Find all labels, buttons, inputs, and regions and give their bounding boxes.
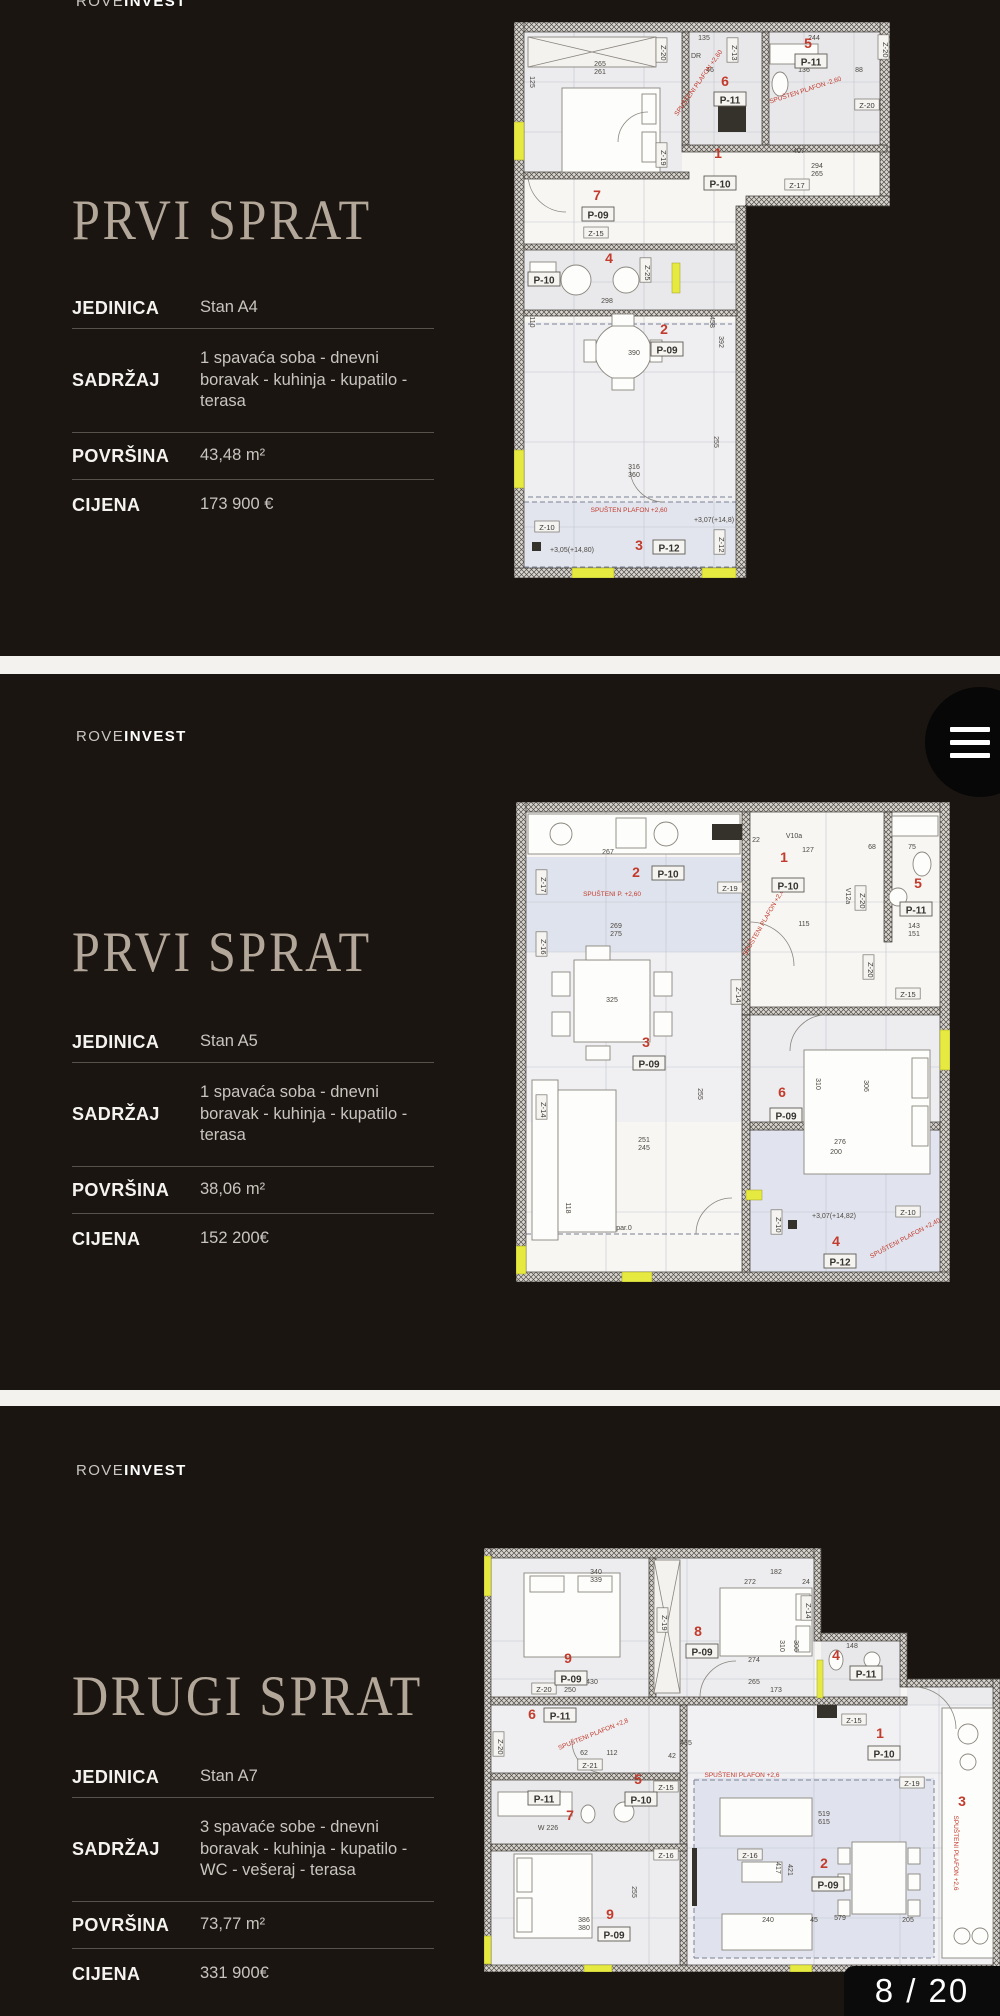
- floor-title: PRVI SPRAT: [72, 192, 372, 249]
- svg-text:306: 306: [862, 1080, 869, 1092]
- floor-title: DRUGI SPRAT: [72, 1668, 423, 1725]
- svg-text:Z-19: Z-19: [660, 1615, 669, 1630]
- svg-text:W 226: W 226: [538, 1825, 558, 1832]
- brand-rove: ROVE: [76, 0, 124, 10]
- svg-text:274: 274: [748, 1657, 760, 1664]
- svg-text:P-11: P-11: [534, 1795, 555, 1806]
- svg-text:255: 255: [712, 436, 719, 448]
- svg-text:Z-14: Z-14: [804, 1603, 813, 1618]
- svg-text:P-09: P-09: [638, 1060, 660, 1071]
- svg-text:Z-20: Z-20: [659, 45, 668, 60]
- price-row: CIJENA 152 200€: [72, 1214, 434, 1264]
- svg-text:4: 4: [605, 250, 613, 266]
- svg-text:P-12: P-12: [658, 544, 680, 555]
- svg-text:Z-20: Z-20: [866, 962, 875, 977]
- svg-text:112: 112: [606, 1750, 617, 1757]
- svg-text:1: 1: [780, 849, 788, 865]
- menu-icon: [950, 753, 990, 758]
- svg-text:339: 339: [590, 1577, 602, 1584]
- svg-text:Z-20: Z-20: [881, 42, 890, 57]
- area-label: POVRŠINA: [72, 1915, 200, 1936]
- svg-text:P-11: P-11: [906, 906, 927, 917]
- svg-text:272: 272: [744, 1579, 756, 1586]
- svg-text:Z-20: Z-20: [859, 101, 874, 110]
- svg-text:200: 200: [830, 1149, 842, 1156]
- svg-text:7: 7: [593, 187, 601, 203]
- svg-text:P-09: P-09: [603, 1931, 625, 1942]
- svg-text:255: 255: [696, 1088, 703, 1100]
- svg-text:Z-10: Z-10: [539, 523, 554, 532]
- svg-text:298: 298: [601, 298, 613, 305]
- brand-rove: ROVE: [76, 728, 124, 745]
- svg-text:24: 24: [802, 1579, 810, 1586]
- svg-text:45: 45: [810, 1917, 818, 1924]
- brand-logo: ROVEINVEST: [76, 0, 187, 10]
- contents-row: SADRŽAJ 1 spavaća soba - dnevni boravak …: [72, 329, 434, 433]
- contents-value: 1 spavaća soba - dnevni boravak - kuhinj…: [200, 348, 434, 413]
- svg-text:6: 6: [721, 73, 729, 89]
- unit-row: JEDINICA Stan A4: [72, 288, 434, 329]
- svg-text:Z-15: Z-15: [900, 990, 915, 999]
- svg-text:P-09: P-09: [691, 1648, 713, 1659]
- svg-text:205: 205: [902, 1917, 914, 1924]
- unit-info-table: JEDINICA Stan A7 SADRŽAJ 3 spavaće sobe …: [72, 1757, 434, 1999]
- svg-text:135: 135: [698, 35, 710, 42]
- svg-text:P-10: P-10: [777, 882, 799, 893]
- svg-text:Z-15: Z-15: [846, 1716, 861, 1725]
- svg-text:Z-15: Z-15: [588, 229, 603, 238]
- svg-text:151: 151: [908, 931, 920, 938]
- svg-text:SPUŠTENI PLAFON +2,6: SPUŠTENI PLAFON +2,6: [705, 1770, 780, 1779]
- unit-label: JEDINICA: [72, 298, 200, 319]
- svg-text:5: 5: [634, 1771, 642, 1787]
- svg-text:276: 276: [834, 1139, 846, 1146]
- area-row: POVRŠINA 73,77 m²: [72, 1902, 434, 1949]
- area-row: POVRŠINA 43,48 m²: [72, 433, 434, 480]
- contents-value: 1 spavaća soba - dnevni boravak - kuhinj…: [200, 1082, 434, 1147]
- price-label: CIJENA: [72, 1229, 200, 1250]
- svg-text:115: 115: [798, 921, 809, 928]
- svg-text:7: 7: [566, 1807, 574, 1823]
- brand-invest: INVEST: [124, 728, 187, 745]
- svg-text:182: 182: [770, 1569, 782, 1576]
- svg-text:P-11: P-11: [801, 58, 822, 69]
- svg-text:3: 3: [642, 1034, 650, 1050]
- svg-text:Z-14: Z-14: [539, 1102, 548, 1117]
- svg-text:316: 316: [628, 464, 640, 471]
- svg-text:42: 42: [668, 1753, 676, 1760]
- svg-text:Z-12: Z-12: [717, 537, 726, 552]
- svg-text:P-10: P-10: [657, 870, 679, 881]
- svg-text:P-09: P-09: [817, 1881, 839, 1892]
- svg-text:143: 143: [908, 923, 920, 930]
- svg-text:3: 3: [635, 537, 643, 553]
- contents-label: SADRŽAJ: [72, 370, 200, 391]
- svg-text:265: 265: [594, 61, 606, 68]
- sheet-separator: [0, 656, 1000, 674]
- svg-text:P-10: P-10: [873, 1750, 895, 1761]
- contents-value: 3 spavaće sobe - dnevni boravak - kuhinj…: [200, 1817, 434, 1882]
- sheet-separator: [0, 1390, 1000, 1406]
- brand-invest: INVEST: [124, 1462, 187, 1479]
- svg-text:par.0: par.0: [616, 1225, 632, 1232]
- price-label: CIJENA: [72, 495, 200, 516]
- contents-label: SADRŽAJ: [72, 1104, 200, 1125]
- svg-text:430: 430: [586, 1679, 598, 1686]
- floor-title: PRVI SPRAT: [72, 924, 372, 981]
- unit-row: JEDINICA Stan A7: [72, 1757, 434, 1798]
- svg-text:P-09: P-09: [560, 1675, 582, 1686]
- svg-text:267: 267: [602, 849, 614, 856]
- floor-sheet: ROVEINVEST DRUGI SPRAT JEDINICA Stan A7 …: [0, 1406, 1000, 2016]
- area-label: POVRŠINA: [72, 446, 200, 467]
- svg-text:255: 255: [630, 1886, 637, 1898]
- svg-text:+3,05(+14,80): +3,05(+14,80): [550, 547, 594, 554]
- area-value: 38,06 m²: [200, 1179, 265, 1201]
- unit-value: Stan A7: [200, 1766, 258, 1788]
- unit-value: Stan A4: [200, 297, 258, 319]
- svg-text:Z-21: Z-21: [582, 1761, 597, 1770]
- svg-text:V10a: V10a: [786, 833, 802, 840]
- svg-text:4: 4: [832, 1647, 840, 1663]
- svg-text:9: 9: [606, 1906, 614, 1922]
- svg-text:Z-20: Z-20: [858, 893, 867, 908]
- floor-sheet: ROVEINVEST PRVI SPRAT JEDINICA Stan A4 S…: [0, 0, 1000, 656]
- floor-plan-drawing: 2671276875222692753251151431513103062762…: [516, 802, 950, 1282]
- contents-row: SADRŽAJ 3 spavaće sobe - dnevni boravak …: [72, 1798, 434, 1902]
- svg-text:306: 306: [792, 1640, 799, 1652]
- brand-logo: ROVEINVEST: [76, 1462, 187, 1479]
- svg-text:110: 110: [528, 316, 535, 327]
- svg-text:615: 615: [818, 1819, 830, 1826]
- svg-text:P-09: P-09: [775, 1112, 797, 1123]
- svg-text:5: 5: [914, 875, 922, 891]
- unit-value: Stan A5: [200, 1031, 258, 1053]
- svg-text:88: 88: [855, 67, 863, 74]
- svg-text:458: 458: [708, 316, 715, 328]
- svg-text:148: 148: [846, 1643, 858, 1650]
- svg-text:SPUŠTEN PLAFON +2,60: SPUŠTEN PLAFON +2,60: [591, 505, 668, 514]
- contents-label: SADRŽAJ: [72, 1839, 200, 1860]
- contents-row: SADRŽAJ 1 spavaća soba - dnevni boravak …: [72, 1063, 434, 1167]
- svg-text:5: 5: [804, 35, 812, 51]
- svg-text:519: 519: [818, 1811, 830, 1818]
- svg-text:Z-19: Z-19: [904, 1779, 919, 1788]
- svg-text:250: 250: [564, 1687, 576, 1694]
- svg-text:4: 4: [832, 1233, 840, 1249]
- price-value: 152 200€: [200, 1228, 269, 1250]
- price-value: 173 900 €: [200, 494, 273, 516]
- svg-text:Z-17: Z-17: [539, 877, 548, 892]
- svg-text:Z-10: Z-10: [900, 1208, 915, 1217]
- svg-text:+3,07(+14,82): +3,07(+14,82): [812, 1213, 856, 1220]
- svg-text:P-10: P-10: [709, 180, 731, 191]
- svg-text:6: 6: [778, 1084, 786, 1100]
- svg-text:Z-20: Z-20: [536, 1685, 551, 1694]
- svg-text:125: 125: [528, 76, 535, 88]
- svg-text:325: 325: [606, 997, 618, 1004]
- svg-text:Z-15: Z-15: [658, 1783, 673, 1792]
- price-label: CIJENA: [72, 1964, 200, 1985]
- area-value: 73,77 m²: [200, 1914, 265, 1936]
- brand-invest: INVEST: [124, 0, 187, 10]
- svg-text:62: 62: [580, 1750, 588, 1757]
- svg-text:421: 421: [786, 1864, 793, 1876]
- unit-row: JEDINICA Stan A5: [72, 1022, 434, 1063]
- svg-text:1: 1: [714, 145, 722, 161]
- svg-text:269: 269: [610, 923, 622, 930]
- svg-text:251: 251: [638, 1137, 650, 1144]
- svg-text:380: 380: [578, 1925, 590, 1932]
- menu-icon: [950, 727, 990, 732]
- svg-text:P-12: P-12: [829, 1258, 851, 1269]
- brand-rove: ROVE: [76, 1462, 124, 1479]
- price-row: CIJENA 331 900€: [72, 1949, 434, 1999]
- svg-text:SPUŠTENI PLAFON +2,6: SPUŠTENI PLAFON +2,6: [952, 1816, 961, 1891]
- svg-text:Z-19: Z-19: [659, 150, 668, 165]
- svg-text:245: 245: [638, 1145, 650, 1152]
- svg-text:435: 435: [680, 1740, 692, 1747]
- svg-text:392: 392: [717, 336, 724, 348]
- svg-text:340: 340: [590, 1569, 602, 1576]
- svg-text:75: 75: [908, 844, 916, 851]
- svg-text:Z-16: Z-16: [742, 1851, 757, 1860]
- svg-text:360: 360: [628, 472, 640, 479]
- floor-sheet: ROVEINVEST PRVI SPRAT JEDINICA Stan A5 S…: [0, 674, 1000, 1390]
- svg-text:Z-14: Z-14: [734, 987, 743, 1002]
- svg-text:Z-10: Z-10: [774, 1217, 783, 1232]
- svg-text:173: 173: [770, 1687, 782, 1694]
- svg-text:275: 275: [610, 931, 622, 938]
- svg-text:1: 1: [876, 1725, 884, 1741]
- svg-text:8: 8: [694, 1623, 702, 1639]
- svg-text:DR: DR: [691, 53, 701, 60]
- svg-text:407: 407: [793, 148, 805, 155]
- svg-text:294: 294: [811, 163, 823, 170]
- svg-text:22: 22: [752, 837, 760, 844]
- svg-text:P-11: P-11: [856, 1670, 877, 1681]
- unit-info-table: JEDINICA Stan A4 SADRŽAJ 1 spavaća soba …: [72, 288, 434, 530]
- svg-text:6: 6: [528, 1706, 536, 1722]
- svg-text:261: 261: [594, 69, 606, 76]
- svg-text:Z-19: Z-19: [722, 884, 737, 893]
- brand-logo: ROVEINVEST: [76, 728, 187, 745]
- svg-text:P-11: P-11: [550, 1712, 571, 1723]
- svg-text:Z-13: Z-13: [730, 45, 739, 60]
- svg-text:+3,07(+14,8): +3,07(+14,8): [694, 517, 734, 524]
- menu-button[interactable]: [925, 687, 1000, 797]
- svg-text:127: 127: [802, 847, 814, 854]
- svg-text:579: 579: [834, 1915, 846, 1922]
- svg-text:V12a: V12a: [844, 888, 851, 904]
- menu-icon: [950, 740, 990, 745]
- unit-info-table: JEDINICA Stan A5 SADRŽAJ 1 spavaća soba …: [72, 1022, 434, 1264]
- svg-text:310: 310: [814, 1078, 821, 1090]
- svg-text:9: 9: [564, 1650, 572, 1666]
- svg-text:2: 2: [632, 864, 640, 880]
- page-indicator: 8 / 20: [844, 1966, 1000, 2016]
- svg-text:Z-17: Z-17: [789, 181, 804, 190]
- svg-text:P-10: P-10: [533, 276, 555, 287]
- area-value: 43,48 m²: [200, 445, 265, 467]
- svg-text:P-10: P-10: [630, 1796, 652, 1807]
- svg-text:2: 2: [660, 321, 668, 337]
- svg-text:265: 265: [811, 171, 823, 178]
- svg-text:P-11: P-11: [720, 96, 741, 107]
- svg-text:386: 386: [578, 1917, 590, 1924]
- svg-text:Z-20: Z-20: [496, 1739, 505, 1754]
- area-row: POVRŠINA 38,06 m²: [72, 1167, 434, 1214]
- unit-label: JEDINICA: [72, 1767, 200, 1788]
- svg-text:P-09: P-09: [656, 346, 678, 357]
- price-row: CIJENA 173 900 €: [72, 480, 434, 530]
- price-value: 331 900€: [200, 1963, 269, 1985]
- svg-text:265: 265: [748, 1679, 760, 1686]
- document-page: 8 / 20 ROVEINVEST PRVI SPRAT JEDINICA St…: [0, 0, 1000, 2016]
- floor-plan-drawing: DR26526113546244136884072942653902983163…: [514, 22, 890, 578]
- svg-text:68: 68: [868, 844, 876, 851]
- unit-label: JEDINICA: [72, 1032, 200, 1053]
- floor-plan-drawing: 3403392721822427426517343025014811262424…: [484, 1548, 1000, 1972]
- svg-text:390: 390: [628, 350, 640, 357]
- svg-text:Z-25: Z-25: [643, 265, 652, 280]
- svg-text:Z-16: Z-16: [658, 1851, 673, 1860]
- area-label: POVRŠINA: [72, 1180, 200, 1201]
- svg-text:Z-16: Z-16: [539, 939, 548, 954]
- svg-text:3: 3: [958, 1793, 966, 1809]
- svg-text:SPUŠTENI P. +2,60: SPUŠTENI P. +2,60: [583, 889, 641, 898]
- svg-text:310: 310: [778, 1640, 785, 1652]
- svg-text:P-09: P-09: [587, 211, 609, 222]
- svg-text:417: 417: [774, 1862, 781, 1874]
- svg-text:240: 240: [762, 1917, 774, 1924]
- svg-text:2: 2: [820, 1855, 828, 1871]
- svg-text:118: 118: [564, 1202, 571, 1213]
